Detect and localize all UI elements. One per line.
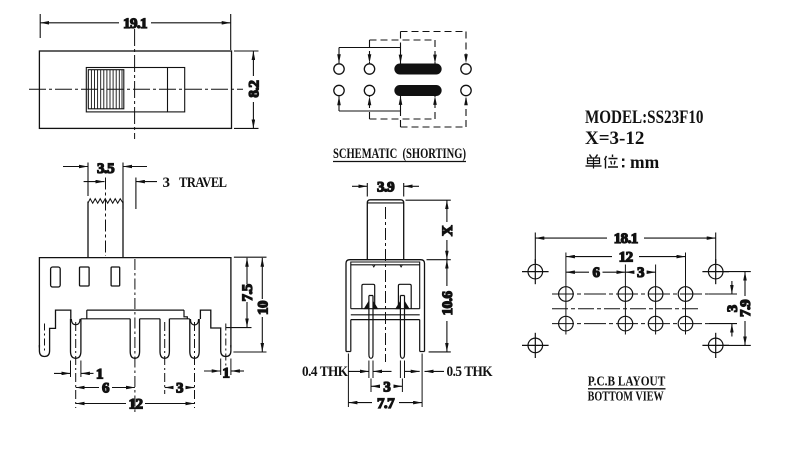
svg-text:MODEL:SS23F10: MODEL:SS23F10: [585, 107, 704, 128]
svg-text:12: 12: [619, 250, 633, 266]
svg-text:TRAVEL: TRAVEL: [179, 175, 227, 191]
svg-text:10: 10: [255, 301, 271, 315]
svg-text:1: 1: [222, 366, 229, 382]
svg-text:mm: mm: [630, 152, 660, 172]
svg-text:3.5: 3.5: [97, 161, 114, 177]
svg-text:6: 6: [102, 381, 110, 397]
svg-text:18.1: 18.1: [614, 231, 638, 247]
svg-text:7.7: 7.7: [377, 396, 395, 412]
svg-text:3: 3: [725, 305, 741, 312]
svg-text:3: 3: [176, 381, 183, 397]
svg-text:19.1: 19.1: [123, 16, 147, 32]
svg-text:0.5 THK: 0.5 THK: [447, 364, 493, 380]
svg-text:0.4 THK: 0.4 THK: [302, 364, 348, 380]
svg-text:10.6: 10.6: [440, 290, 456, 315]
svg-text:3: 3: [383, 380, 390, 396]
svg-text:BOTTOM VIEW: BOTTOM VIEW: [588, 390, 664, 405]
svg-text:7.5: 7.5: [240, 284, 256, 301]
svg-text:8.2: 8.2: [246, 81, 262, 98]
svg-text:3: 3: [637, 265, 644, 281]
svg-text:P.C.B LAYOUT: P.C.B LAYOUT: [588, 375, 666, 390]
svg-text:3.9: 3.9: [377, 179, 394, 195]
svg-text:SCHEMATIC (SHORTING): SCHEMATIC (SHORTING): [333, 146, 466, 162]
svg-text:12: 12: [129, 397, 143, 413]
svg-text:6: 6: [592, 265, 600, 281]
svg-text:X: X: [440, 225, 456, 236]
svg-text:3: 3: [163, 175, 170, 191]
svg-text:X=3-12: X=3-12: [585, 128, 644, 149]
